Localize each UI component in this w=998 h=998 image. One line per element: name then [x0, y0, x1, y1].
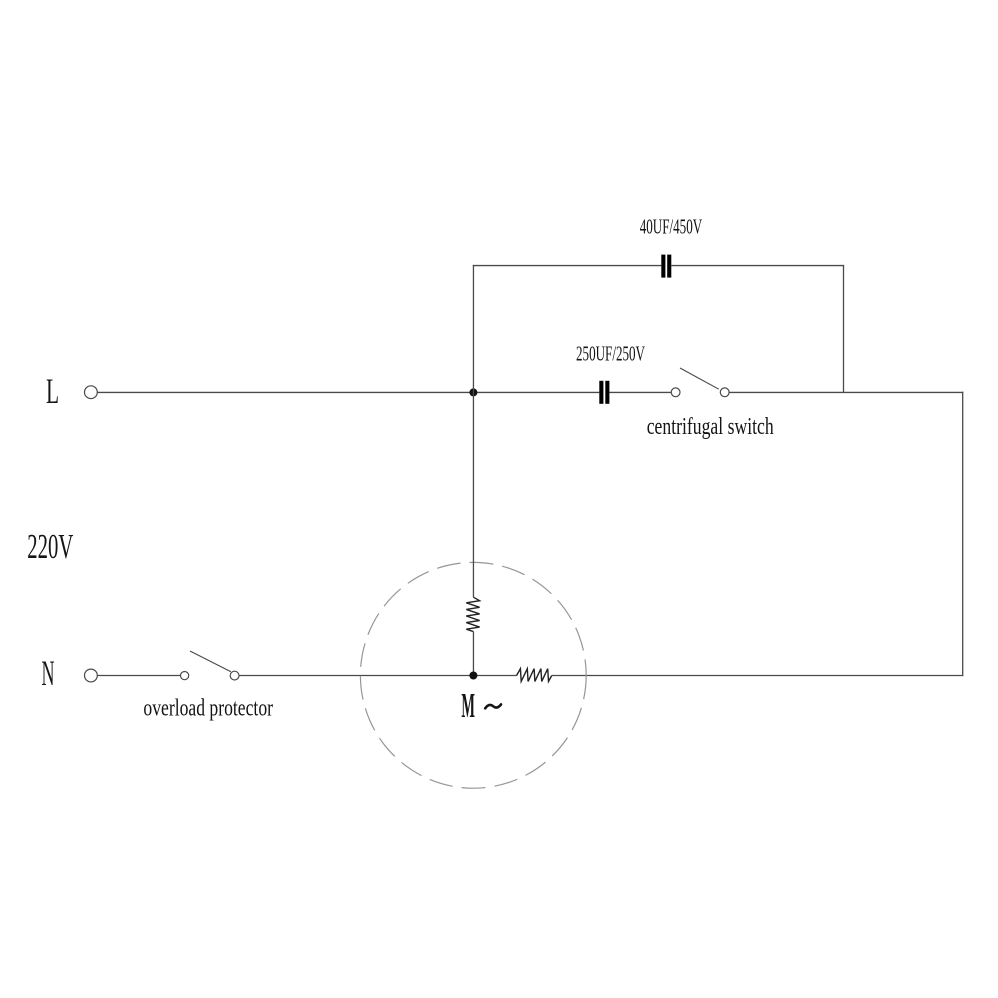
svg-text:N: N: [42, 653, 55, 693]
svg-text:L: L: [46, 371, 59, 411]
svg-text:centrifugal switch: centrifugal switch: [647, 413, 774, 440]
svg-text:40UF/450V: 40UF/450V: [640, 215, 703, 239]
svg-text:overload protector: overload protector: [143, 694, 273, 721]
svg-text:250UF/250V: 250UF/250V: [576, 342, 645, 366]
svg-text:220V: 220V: [27, 527, 73, 566]
svg-text:M: M: [461, 686, 475, 725]
